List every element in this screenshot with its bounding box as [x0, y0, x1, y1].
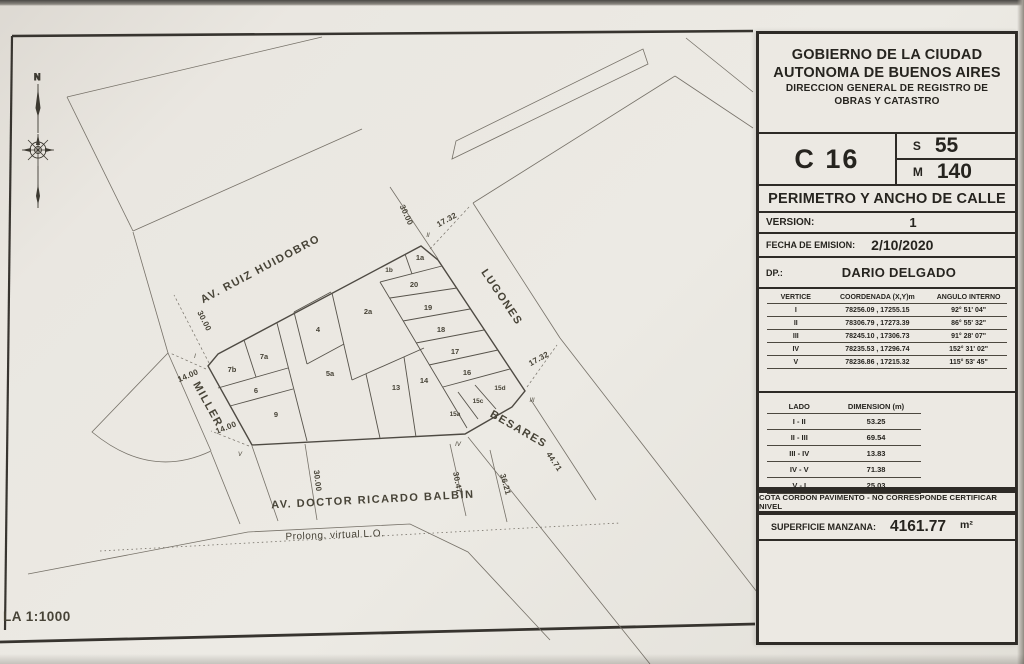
- street-label-ruiz-huidobro: AV. RUIZ HUIDOBRO: [199, 233, 323, 306]
- document-title: PERIMETRO Y ANCHO DE CALLE: [759, 186, 1015, 213]
- dim-lugones-right: 17.32: [527, 350, 550, 368]
- vertice-coord: 78256.09 , 17255.15: [825, 304, 931, 317]
- org-line-2: AUTONOMA DE BUENOS AIRES: [759, 64, 1015, 82]
- scanned-plan-page: N: [0, 0, 1024, 664]
- side-id: III - IV: [767, 446, 832, 462]
- lot-label: 5a: [326, 369, 335, 378]
- emission-date-value: 2/10/2020: [871, 237, 933, 253]
- sides-header-dimension: DIMENSION (m): [832, 401, 921, 414]
- side-id: IV - V: [767, 462, 832, 478]
- lot-label: 7b: [228, 365, 237, 374]
- vertex-v: V: [238, 452, 243, 458]
- lot-label: 9: [274, 410, 278, 419]
- dim-ruiz-top: 30.00: [398, 203, 415, 227]
- street-label-lugones: LUGONES: [478, 267, 524, 328]
- lot-label: 7a: [260, 352, 269, 361]
- vertices-row: IV 78235.53 , 17296.74 152° 31' 02": [767, 343, 1007, 356]
- lot-label: 1a: [416, 253, 425, 262]
- vertice-coord: 78245.10 , 17306.73: [825, 330, 931, 343]
- sides-row: I - II 53.25: [767, 414, 921, 430]
- lot-label: 13: [392, 383, 400, 392]
- north-compass-icon: N: [22, 72, 54, 208]
- vertice-coord: 78235.53 , 17296.74: [825, 343, 931, 356]
- parcel-id-row: C 16 S 55 M 140: [759, 134, 1015, 186]
- sides-row: II - III 69.54: [767, 430, 921, 446]
- draftsman-label: DP.:: [759, 268, 783, 278]
- lot-label: 6: [254, 386, 258, 395]
- vertice-id: II: [767, 317, 825, 330]
- lot-label: 15a: [450, 411, 461, 418]
- lot-label: 2a: [364, 307, 373, 316]
- sides-row: III - IV 13.83: [767, 446, 921, 462]
- side-dimension: 53.25: [832, 414, 921, 430]
- lot-label: 14: [420, 376, 429, 385]
- vertice-angle: 115° 53' 45": [930, 356, 1007, 369]
- version-label: VERSION:: [759, 217, 814, 228]
- manzana-value: 140: [937, 160, 972, 184]
- dim-lugones-top: 17.32: [435, 211, 458, 229]
- seccion-cell: S 55: [897, 134, 1015, 158]
- draftsman-row: DP.: DARIO DELGADO: [759, 258, 1015, 289]
- vertices-table: VERTICE COORDENADA (X,Y)m ANGULO INTERNO…: [759, 289, 1015, 393]
- lot-label: 19: [424, 303, 432, 312]
- virtual-line-label: Prolong. virtual L.O.: [285, 528, 384, 542]
- vertice-angle: 91° 28' 07": [930, 330, 1007, 343]
- scan-edge-top: [0, 0, 1024, 6]
- lot-label: 15c: [473, 398, 484, 405]
- sides-row: IV - V 71.38: [767, 462, 921, 478]
- version-value: 1: [909, 215, 916, 230]
- vertex-i: I: [194, 354, 196, 360]
- vertice-id: III: [767, 330, 825, 343]
- vertices-row: I 78256.09 , 17255.15 92° 51' 04": [767, 304, 1007, 317]
- vertice-angle: 152° 31' 02": [930, 343, 1007, 356]
- dim-besares: 44.71: [544, 450, 564, 473]
- cota-note: COTA CORDON PAVIMENTO - NO CORRESPONDE C…: [759, 491, 1015, 513]
- org-line-4: OBRAS Y CATASTRO: [759, 95, 1015, 108]
- surface-label: SUPERFICIE MANZANA:: [759, 522, 876, 532]
- vertice-coord: 78306.79 , 17273.39: [825, 317, 931, 330]
- north-label: N: [34, 72, 41, 82]
- vertice-coord: 78236.86 , 17215.32: [825, 356, 931, 369]
- vertices-row: II 78306.79 , 17273.39 86° 55' 32": [767, 317, 1007, 330]
- side-dimension: 69.54: [832, 430, 921, 446]
- sides-table: LADO DIMENSION (m) I - II 53.25 II - III…: [759, 393, 1015, 489]
- lot-label: 15d: [494, 385, 505, 392]
- surface-unit: m²: [960, 519, 973, 531]
- circunscripcion-cell: C 16: [759, 134, 897, 184]
- circunscripcion-value: 16: [825, 144, 859, 175]
- vertices-header-coordenada: COORDENADA (X,Y)m: [825, 293, 931, 304]
- dim-balbin: 30.00: [312, 469, 324, 492]
- vertices-row: III 78245.10 , 17306.73 91° 28' 07": [767, 330, 1007, 343]
- sides-header-lado: LADO: [767, 401, 832, 414]
- seccion-label: S: [913, 139, 921, 153]
- org-line-1: GOBIERNO DE LA CIUDAD: [759, 46, 1015, 64]
- dim-ruiz-left: 30.00: [195, 309, 213, 332]
- emission-date-row: FECHA DE EMISION: 2/10/2020: [759, 234, 1015, 258]
- surface-value: 4161.77: [890, 518, 946, 536]
- lot-label: 20: [410, 280, 418, 289]
- vertices-header-angulo: ANGULO INTERNO: [930, 293, 1007, 304]
- emission-date-label: FECHA DE EMISION:: [759, 240, 855, 250]
- street-label-balbin: AV. DOCTOR RICARDO BALBIN: [271, 489, 475, 512]
- lot-label: 18: [437, 325, 445, 334]
- vertex-ii: II: [426, 233, 430, 239]
- org-header: GOBIERNO DE LA CIUDAD AUTONOMA DE BUENOS…: [759, 34, 1015, 134]
- side-id: II - III: [767, 430, 832, 446]
- manzana-cell: M 140: [897, 158, 1015, 184]
- draftsman-value: DARIO DELGADO: [783, 265, 1015, 280]
- side-dimension: 71.38: [832, 462, 921, 478]
- vertex-iv: IV: [455, 442, 462, 448]
- version-row: VERSION: 1: [759, 213, 1015, 234]
- vertex-iii: III: [529, 398, 534, 404]
- vertice-id: V: [767, 356, 825, 369]
- vertice-angle: 92° 51' 04": [930, 304, 1007, 317]
- manzana-label: M: [913, 165, 923, 179]
- vertice-id: I: [767, 304, 825, 317]
- vertices-row: V 78236.86 , 17215.32 115° 53' 45": [767, 356, 1007, 369]
- cadastral-map: N: [0, 0, 757, 664]
- street-label-besares: BESARES: [488, 408, 549, 450]
- side-dimension: 13.83: [832, 446, 921, 462]
- lot-label: 16: [463, 368, 471, 377]
- vertices-header-vertice: VERTICE: [767, 293, 825, 304]
- vertice-id: IV: [767, 343, 825, 356]
- scan-edge-bottom: [0, 654, 1024, 664]
- side-id: I - II: [767, 414, 832, 430]
- scan-edge-right: [1017, 0, 1024, 664]
- lot-label: 1b: [385, 267, 393, 274]
- surface-row: SUPERFICIE MANZANA: 4161.77 m²: [759, 513, 1015, 541]
- circunscripcion-label: C: [794, 144, 816, 175]
- vertice-angle: 86° 55' 32": [930, 317, 1007, 330]
- title-block: GOBIERNO DE LA CIUDAD AUTONOMA DE BUENOS…: [756, 31, 1018, 645]
- scale-label: LA 1:1000: [3, 609, 71, 624]
- org-line-3: DIRECCION GENERAL DE REGISTRO DE: [759, 82, 1015, 95]
- lot-label: 17: [451, 347, 459, 356]
- seccion-value: 55: [935, 134, 958, 158]
